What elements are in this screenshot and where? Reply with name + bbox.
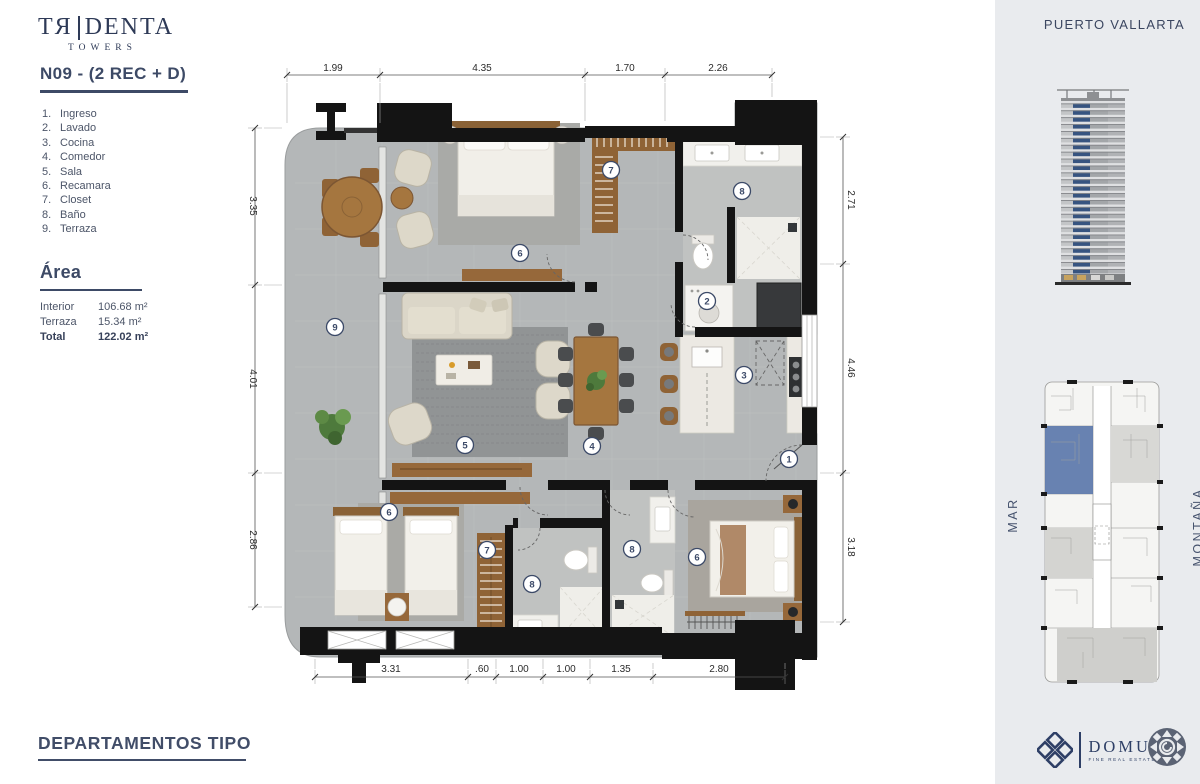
svg-text:8: 8 [529, 579, 534, 590]
svg-text:3.18: 3.18 [845, 537, 856, 557]
marker-closet-1: 7 [603, 162, 620, 179]
legend-item: 7.Closet [42, 193, 111, 207]
marker-closet-2: 7 [479, 542, 496, 559]
legend-item: 2.Lavado [42, 121, 111, 135]
section-title: DEPARTAMENTOS TIPO [38, 733, 251, 753]
svg-text:7: 7 [484, 545, 489, 556]
emblem-logo-icon [1146, 726, 1188, 768]
marker-recamara-3: 6 [689, 549, 706, 566]
tower-elevation-image [1047, 84, 1139, 299]
terrace-dining-table [322, 168, 382, 247]
svg-text:3.31: 3.31 [381, 664, 401, 675]
svg-text:2: 2 [704, 296, 709, 307]
marker-sala: 5 [457, 437, 474, 454]
svg-text:1.99: 1.99 [323, 63, 343, 74]
marker-terraza: 9 [327, 319, 344, 336]
svg-text:1.35: 1.35 [611, 664, 631, 675]
svg-text:8: 8 [629, 544, 634, 555]
marker-comedor: 4 [584, 438, 601, 455]
floorplan-svg: 1.99 4.35 1.70 2.26 3.31 .60 1.00 1.00 1… [240, 55, 860, 695]
area-row-terraza: Terraza15.34 m² [40, 315, 148, 330]
brand-divider [78, 16, 80, 40]
brand-towers: TOWERS [68, 43, 174, 53]
location-label: PUERTO VALLARTA [1044, 17, 1185, 32]
svg-text:6: 6 [517, 248, 522, 259]
svg-text:5: 5 [462, 440, 468, 451]
legend-item: 1.Ingreso [42, 107, 111, 121]
section-title-rule [38, 759, 246, 761]
area-row-total: Total122.02 m² [40, 330, 148, 345]
legend-item: 9.Terraza [42, 222, 111, 236]
legend-item: 6.Recamara [42, 179, 111, 193]
svg-text:2.86: 2.86 [247, 530, 258, 550]
svg-text:1: 1 [786, 454, 792, 465]
brand-right: DENTA [85, 14, 174, 41]
svg-text:4.01: 4.01 [247, 369, 258, 389]
svg-text:4: 4 [589, 441, 595, 452]
marker-bano-1: 8 [734, 183, 751, 200]
area-rule [40, 289, 142, 291]
svg-text:1.70: 1.70 [615, 63, 635, 74]
mar-label: MAR [1006, 485, 1020, 545]
svg-text:3.35: 3.35 [247, 196, 258, 216]
svg-text:8: 8 [739, 186, 744, 197]
marker-cocina: 3 [736, 367, 753, 384]
brand-left: TЯ [38, 14, 73, 41]
svg-text:2.80: 2.80 [709, 664, 729, 675]
marker-lavado: 2 [699, 293, 716, 310]
svg-text:9: 9 [332, 322, 337, 333]
unit-title-block: N09 - (2 REC + D) [40, 64, 188, 93]
keyplan-image [1027, 376, 1177, 688]
area-block: Área Interior106.68 m² Terraza15.34 m² T… [40, 262, 148, 345]
marker-bano-2: 8 [524, 576, 541, 593]
unit-title: N09 - (2 REC + D) [40, 64, 186, 83]
marker-recamara-1: 6 [512, 245, 529, 262]
svg-text:6: 6 [386, 507, 391, 518]
bathroom-three [610, 490, 675, 637]
svg-text:4.46: 4.46 [845, 358, 856, 378]
floorplan: 1.99 4.35 1.70 2.26 3.31 .60 1.00 1.00 1… [240, 55, 860, 700]
svg-text:3: 3 [741, 370, 746, 381]
section-title-block: DEPARTAMENTOS TIPO [38, 733, 251, 761]
room-legend: 1.Ingreso 2.Lavado 3.Cocina 4.Comedor 5.… [42, 107, 111, 237]
svg-text:1.00: 1.00 [509, 664, 529, 675]
marker-bano-3: 8 [624, 541, 641, 558]
svg-text:2.71: 2.71 [845, 190, 856, 210]
legend-item: 5.Sala [42, 165, 111, 179]
unit-title-rule [40, 90, 188, 93]
montana-label: MONTAÑA [1191, 482, 1200, 572]
domus-logo: DOMUS FINE REAL ESTATE ® [1037, 732, 1164, 768]
svg-text:2.26: 2.26 [708, 63, 728, 74]
area-row-interior: Interior106.68 m² [40, 300, 148, 315]
legend-item: 8.Baño [42, 208, 111, 222]
legend-item: 4.Comedor [42, 150, 111, 164]
svg-text:7: 7 [608, 165, 613, 176]
area-heading: Área [40, 262, 148, 283]
domus-divider [1079, 732, 1081, 768]
svg-text:6: 6 [694, 552, 699, 563]
sidebar: PUERTO VALLARTA [995, 0, 1200, 784]
svg-text:.60: .60 [475, 664, 489, 675]
domus-icon [1037, 732, 1073, 768]
marker-ingreso: 1 [781, 451, 798, 468]
svg-text:4.35: 4.35 [472, 63, 492, 74]
svg-text:1.00: 1.00 [556, 664, 576, 675]
brand-logo: TЯ DENTA TOWERS [38, 14, 174, 53]
legend-item: 3.Cocina [42, 136, 111, 150]
marker-recamara-2: 6 [381, 504, 398, 521]
